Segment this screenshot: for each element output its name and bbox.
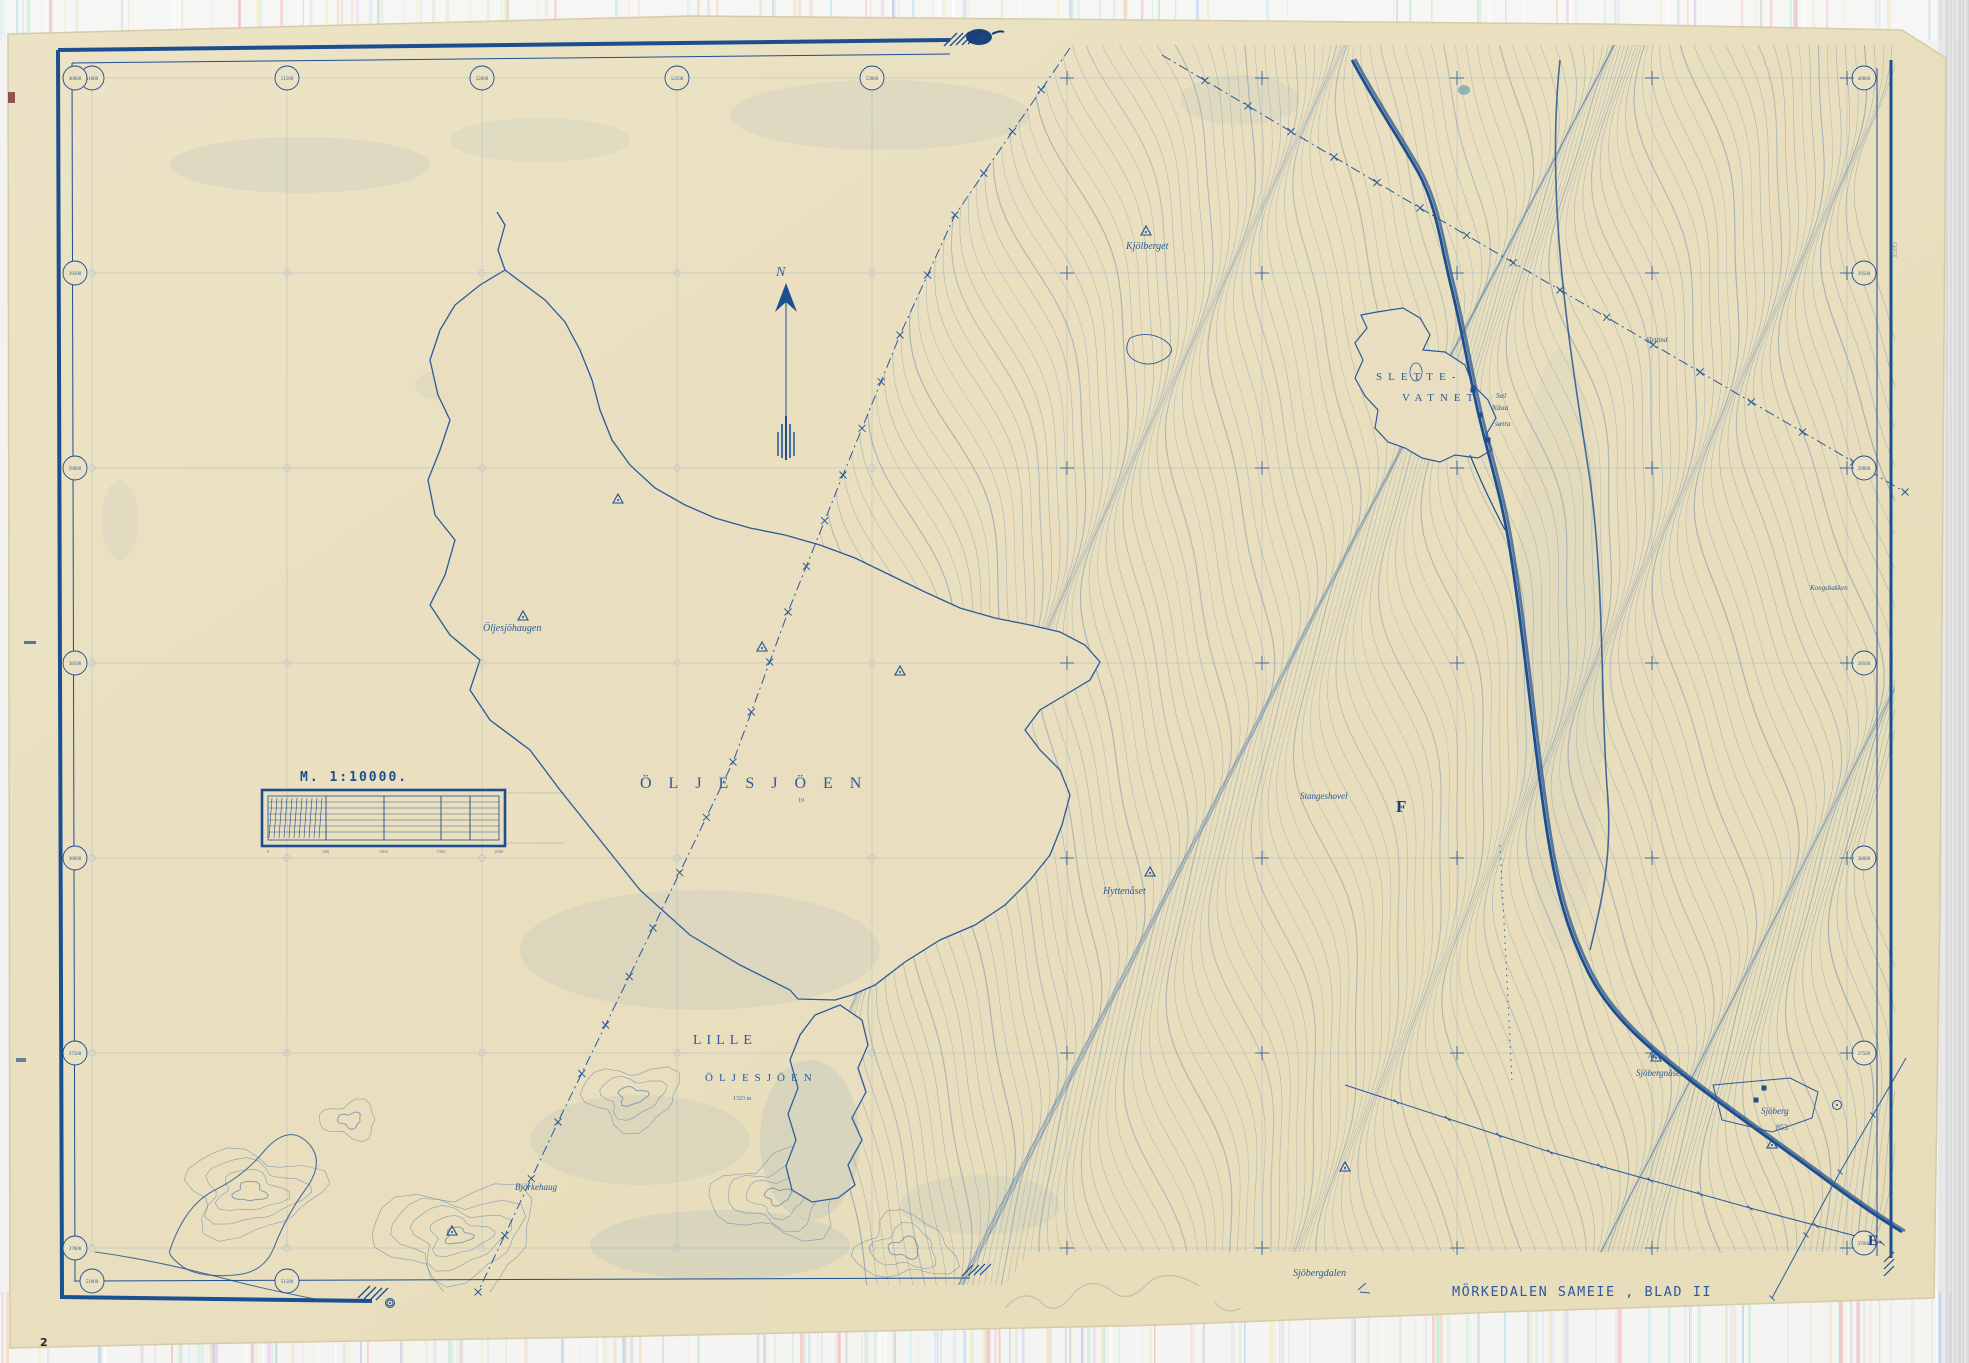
label-f-mark: F xyxy=(1396,797,1406,816)
grid-number: 38500 xyxy=(69,662,82,667)
building-icon xyxy=(1486,438,1491,443)
grid-number: 51500 xyxy=(281,1280,294,1285)
grid-number: 51000 xyxy=(86,1280,99,1285)
grid-number: 39000 xyxy=(1858,467,1871,472)
label-sael: Sæl xyxy=(1496,392,1506,400)
label-oljesjohaugen: Öljesjöhaugen xyxy=(483,622,541,634)
grid-number: 52500 xyxy=(671,77,684,82)
label-slette-1: SLETTE- xyxy=(1376,371,1461,383)
grid-number: 39500 xyxy=(69,272,82,277)
grid-number: 52000 xyxy=(476,77,489,82)
edge-mark-blue-2 xyxy=(16,1058,26,1062)
grid-number: 37000 xyxy=(69,1247,82,1252)
scanned-map-page: 5100051500520005250053000510005150040000… xyxy=(0,0,1969,1363)
page-number: 2 xyxy=(40,1336,48,1349)
north-label: N xyxy=(775,265,786,280)
label-slette-2: VATNET xyxy=(1402,392,1479,404)
grid-number: 37500 xyxy=(1858,1052,1871,1057)
grid-number: 38500 xyxy=(1858,662,1871,667)
label-sjoberg: Sjöberg xyxy=(1761,1106,1789,1116)
label-slettind: Slettind xyxy=(1646,336,1668,344)
scale-tick: 1000 xyxy=(379,849,389,854)
scale-tick: 500 xyxy=(322,849,330,854)
grid-number: 40000 xyxy=(69,77,82,82)
label-lille-1: LILLE xyxy=(693,1033,757,1048)
scale-tick: 2000 xyxy=(494,849,504,854)
label-kjolberget: Kjölberget xyxy=(1125,241,1169,252)
label-saetra: sætra xyxy=(1495,420,1511,428)
edge-mark-blue-1 xyxy=(24,641,36,644)
grid-number: 38000 xyxy=(1858,857,1871,862)
grid-number: 40000 xyxy=(1858,77,1871,82)
grid-number: 39500 xyxy=(1858,272,1871,277)
label-hyttenaset: Hyttenåset xyxy=(1102,886,1146,897)
label-sjobergnaset: Sjöbergnåset xyxy=(1636,1068,1683,1078)
grid-number: 37500 xyxy=(69,1052,82,1057)
grid-number: 38000 xyxy=(69,857,82,862)
grid-number: 39000 xyxy=(69,467,82,472)
building-icon xyxy=(1478,413,1483,418)
label-lille-2: ÖLJESJÖEN xyxy=(705,1072,818,1084)
label-kongsbakken: Kongsbakken xyxy=(1809,584,1848,592)
map-title-stamp: MÖRKEDALEN SAMEIE , BLAD II xyxy=(1452,1282,1712,1300)
margin-note: 1595 xyxy=(1890,242,1899,258)
scale-tick: 1500 xyxy=(437,849,447,854)
label-oljesjoen: ÖLJESJÖEN xyxy=(640,774,878,792)
label-bjorkehaug: Björkehaug xyxy=(515,1182,557,1192)
grid-number: 51000 xyxy=(86,77,99,82)
label-sjoberg-elev: 853 xyxy=(1776,1123,1788,1132)
grid-number: 51500 xyxy=(281,77,294,82)
label-sjobergdalen: Sjöbergdalen xyxy=(1293,1268,1346,1279)
edge-mark-red xyxy=(8,92,15,103)
label-oljesjoen-depth: 19 xyxy=(798,798,804,804)
grid-number: 53000 xyxy=(866,77,879,82)
label-lille-elev: 1323 m xyxy=(733,1096,752,1102)
building-icon xyxy=(1762,1086,1767,1091)
ink-blot xyxy=(966,29,992,45)
building-icon xyxy=(1754,1098,1759,1103)
label-stangeshovel: Stangeshovel xyxy=(1300,791,1348,801)
label-e-mark: E xyxy=(1868,1233,1878,1249)
label-naasta: Nåsta xyxy=(1491,404,1509,412)
map-canvas: 5100051500520005250053000510005150040000… xyxy=(0,0,1969,1363)
label-asen: Åsen xyxy=(1647,1052,1662,1060)
scale-title: M. 1:10000. xyxy=(300,770,408,785)
